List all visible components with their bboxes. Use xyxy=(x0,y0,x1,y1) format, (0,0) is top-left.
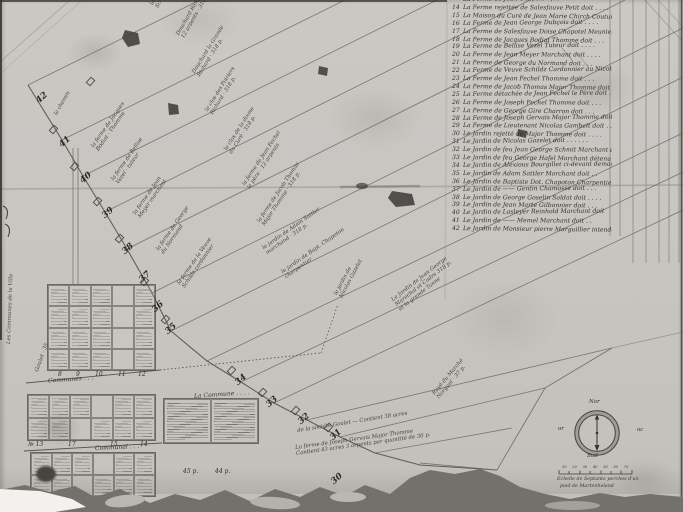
register-entry-text: La Ferme de Joseph Gervais Major Thomme … xyxy=(463,113,612,121)
lot-cell xyxy=(48,306,69,327)
lot-column-number: 14 xyxy=(140,441,148,448)
lot-cell xyxy=(134,418,155,441)
register-entry: 40Le Jardin de Lasleyer Reinhold Marchan… xyxy=(452,208,612,217)
register-entry-number: 27 xyxy=(452,107,463,115)
register-entry-text: La Ferme de Jean George Dubçois doit . .… xyxy=(463,18,598,26)
register-entry-number: 24 xyxy=(452,83,463,91)
register-entry-number: 31 xyxy=(452,138,463,146)
register-entry: 22La Ferme de Veuve Schildz Cordonnier a… xyxy=(452,66,612,75)
lot-column-number: 12 xyxy=(138,371,146,378)
register-entry-text: Le Jardin de —— Memel Marchant doit . . xyxy=(463,217,592,225)
register-entry-text: La Ferme rejettée de Salesfauve Petit do… xyxy=(463,4,609,12)
register-entry-number: 40 xyxy=(452,209,463,217)
lot-cell xyxy=(49,418,70,441)
register-entry-number: 34 xyxy=(452,162,463,170)
lot-cell xyxy=(112,306,133,327)
register-entry-text: La Ferme détachée de Jean Fechel le Père… xyxy=(463,89,612,97)
lot-cell xyxy=(91,418,112,441)
compass-rose xyxy=(575,411,619,455)
lot-cell xyxy=(134,395,155,418)
register-entry: 32Le Jardin de feu Jean George Schmit Ma… xyxy=(452,146,612,154)
register-entry-number: 28 xyxy=(452,114,463,122)
register-entry: 19La Ferme de Bellise Vezel Tuteur doit … xyxy=(452,42,612,51)
lot-cell xyxy=(69,349,90,370)
register-entry-text: Le Jardin de Lasleyer Reinhold Marchant … xyxy=(463,208,605,216)
lot-cell xyxy=(91,306,112,327)
compass-north-label: Nor xyxy=(589,399,600,405)
register-entry-number: 23 xyxy=(452,75,463,83)
lot-cell xyxy=(134,349,155,370)
register-entry-text: La Ferme de Veuve Schildz Cordonnier au … xyxy=(463,66,612,74)
register-entry-text: La Ferme de Salesfauve Doise Chapotel Me… xyxy=(463,28,612,36)
register-entry-text: La Ferme de Lieutenant Nicolas Gambelt d… xyxy=(463,122,612,130)
paper-curl xyxy=(330,492,366,502)
register-entry: 41Le Jardin de —— Memel Marchant doit . … xyxy=(452,217,612,225)
register-entry-number: 19 xyxy=(452,43,463,51)
lot-cell xyxy=(70,395,91,418)
register-entry: 25La Ferme détachée de Jean Fechel le Pè… xyxy=(452,89,612,98)
register-entry: 42Le Jardin de Monsieur pierre Marguilli… xyxy=(452,225,612,234)
register-entry-number: 14 xyxy=(452,4,463,12)
register-entry-number: 33 xyxy=(452,154,463,162)
register-entry-number: 15 xyxy=(452,12,463,20)
lot-cell xyxy=(91,328,112,349)
register-entry: 23La Ferme de Jean Fechel Thomme doit . … xyxy=(452,75,612,83)
lot-cell xyxy=(113,395,134,418)
register-entry-text: La Ferme de Jean Meyer Marchant doit . .… xyxy=(463,51,601,59)
register-entry-number: 21 xyxy=(452,59,463,67)
register-entry: 26La Ferme de Joseph Fechel Thomme doit … xyxy=(452,99,612,107)
register-entry-text: Le Jardin de Monsieur pierre Marguillier… xyxy=(463,225,612,234)
register-entry-number: 36 xyxy=(452,178,463,186)
lot-cell xyxy=(70,418,91,441)
lot-grid xyxy=(27,394,156,441)
lot-cell xyxy=(91,285,112,306)
register-entry-number: 30 xyxy=(452,130,463,138)
paper-curl xyxy=(545,501,600,510)
register-entry-text: Le Jardin de Adam Sattler Marchant doit … xyxy=(463,170,597,178)
register-entry-text: Le Jardin de Alexious Bourgillet ci-deva… xyxy=(463,160,612,168)
register-entry: 31Le Jardin de Nicolas Gazelet doit . . … xyxy=(452,137,612,146)
lot-cell xyxy=(112,328,133,349)
lot-cell xyxy=(49,395,70,418)
register-entry-text: La Ferme de Jean Chapoton fils doit . . … xyxy=(463,0,590,3)
register-entry-number: 20 xyxy=(452,51,463,59)
scan-top-edge xyxy=(0,0,447,2)
lot-cell xyxy=(28,395,49,418)
register-entry: La Ferme de Jean Chapoton fils doit . . … xyxy=(452,0,612,4)
register-entry-number: 26 xyxy=(452,99,463,107)
lot-grid xyxy=(47,284,156,371)
lot-cell xyxy=(69,306,90,327)
register-entry-number: 17 xyxy=(452,28,463,36)
lot-column-number: 10 xyxy=(95,371,103,378)
register-entry: 37Le Jardin de —— Gentin Chamosse doit .… xyxy=(452,184,612,193)
register-entry-number: 22 xyxy=(452,67,463,75)
register-entry-text: La Ferme de Bellise Vezel Tuteur doit . … xyxy=(463,42,595,50)
register-entry-number: 35 xyxy=(452,170,463,178)
register-entry: 35Le Jardin de Adam Sattler Marchant doi… xyxy=(452,170,612,178)
lot-cell xyxy=(112,349,133,370)
compass-west-label: or xyxy=(558,426,564,432)
lot-cell xyxy=(48,349,69,370)
lot-cell xyxy=(211,399,258,443)
register-entry-number: 25 xyxy=(452,91,463,99)
register-entry-text: Le Jardin de feu Jean George Schmit Marc… xyxy=(463,146,612,154)
lot-grid xyxy=(163,398,259,444)
lot-column-number: № 13 xyxy=(28,441,43,448)
register-entry-text: La Ferme de Jean Fechel Thomme doit . . … xyxy=(463,75,594,83)
lot-cell xyxy=(164,399,211,443)
lot-cell xyxy=(134,328,155,349)
register-entry-number: 16 xyxy=(452,20,463,28)
register-entry-number: 38 xyxy=(452,194,463,202)
register-list: La Ferme de Jean Chapoton fils doit . . … xyxy=(452,0,612,240)
compass-south-label: Sud xyxy=(587,453,598,459)
lot-cell xyxy=(134,285,155,306)
register-entry-number: 37 xyxy=(452,185,463,193)
register-entry: 16La Ferme de Jean George Dubçois doit .… xyxy=(452,18,612,27)
register-entry: 14La Ferme rejettée de Salesfauve Petit … xyxy=(452,4,612,12)
lot-cell xyxy=(69,328,90,349)
register-entry-text: Le Jardin de —— Gentin Chamosse doit . .… xyxy=(463,184,597,192)
torn-edge-shadow xyxy=(0,468,683,494)
lot-cell xyxy=(69,285,90,306)
register-entry-text: Le Jardin de Nicolas Gazelet doit . . . … xyxy=(463,137,588,145)
lot-cell xyxy=(112,285,133,306)
lot-cell xyxy=(28,418,49,441)
lot-cell xyxy=(91,395,112,418)
lot-cell xyxy=(48,285,69,306)
register-entry: 28La Ferme de Joseph Gervais Major Thomm… xyxy=(452,113,612,122)
lot-column-number: 11 xyxy=(118,371,126,378)
margin-squiggle-marks xyxy=(3,206,9,237)
register-entry-number: 41 xyxy=(452,217,463,225)
register-entry-number: 42 xyxy=(452,225,463,233)
compass-east-label: oc xyxy=(637,427,643,433)
lot-cell xyxy=(113,418,134,441)
register-entry-number: 29 xyxy=(452,122,463,130)
lot-cell xyxy=(91,349,112,370)
lot-column-number: 17 xyxy=(68,441,76,448)
register-rule-lines xyxy=(610,0,682,512)
register-entry-text: La Ferme de Joseph Fechel Thomme doit . … xyxy=(463,99,601,107)
register-entry-text: Le Jardin de George Goselin Soldat doit … xyxy=(463,194,601,202)
compass-needle-south-arrow xyxy=(595,445,600,451)
register-entry-number: 32 xyxy=(452,146,463,154)
register-entry: 17La Ferme de Salesfauve Doise Chapotel … xyxy=(452,28,612,36)
register-entry: 34Le Jardin de Alexious Bourgillet ci-de… xyxy=(452,160,612,169)
lot-cell xyxy=(48,328,69,349)
scanned-map: La Ferme de Jean Chapoton fils doit . . … xyxy=(0,0,683,512)
scan-left-edge xyxy=(0,0,2,340)
